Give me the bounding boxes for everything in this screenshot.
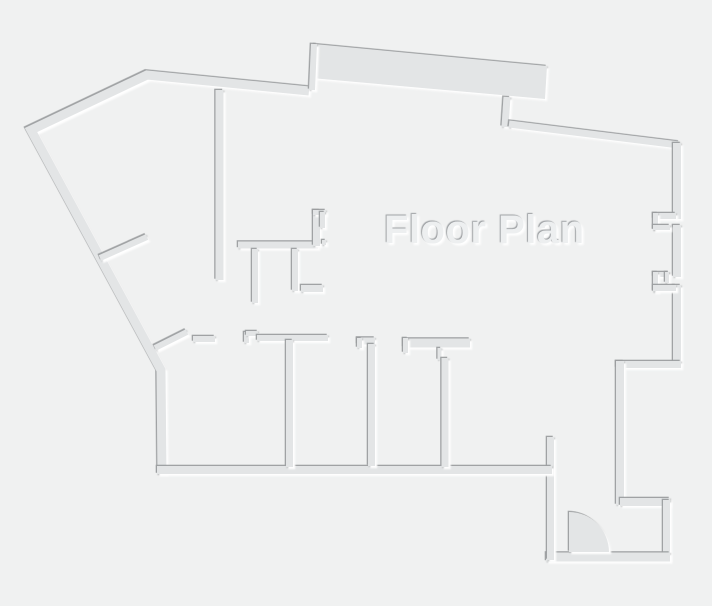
- entry-door-swing-arc: [569, 512, 609, 552]
- west-diagonal-stub-upper: [100, 237, 147, 258]
- floor-plan-title: Floor Plan: [384, 210, 585, 250]
- west-northwest-outer-wall: [31, 75, 309, 474]
- top-thick-wall-slab: [311, 44, 547, 99]
- floor-plan: Floor Plan: [0, 0, 712, 606]
- top-right-outer-wall: [509, 124, 679, 145]
- top-step-down-wall: [505, 97, 507, 127]
- top-step-up-wall: [312, 44, 314, 90]
- floor-plan-drawing: [0, 0, 712, 606]
- west-diagonal-stub-lower: [155, 332, 187, 348]
- walls-layer: [31, 44, 681, 560]
